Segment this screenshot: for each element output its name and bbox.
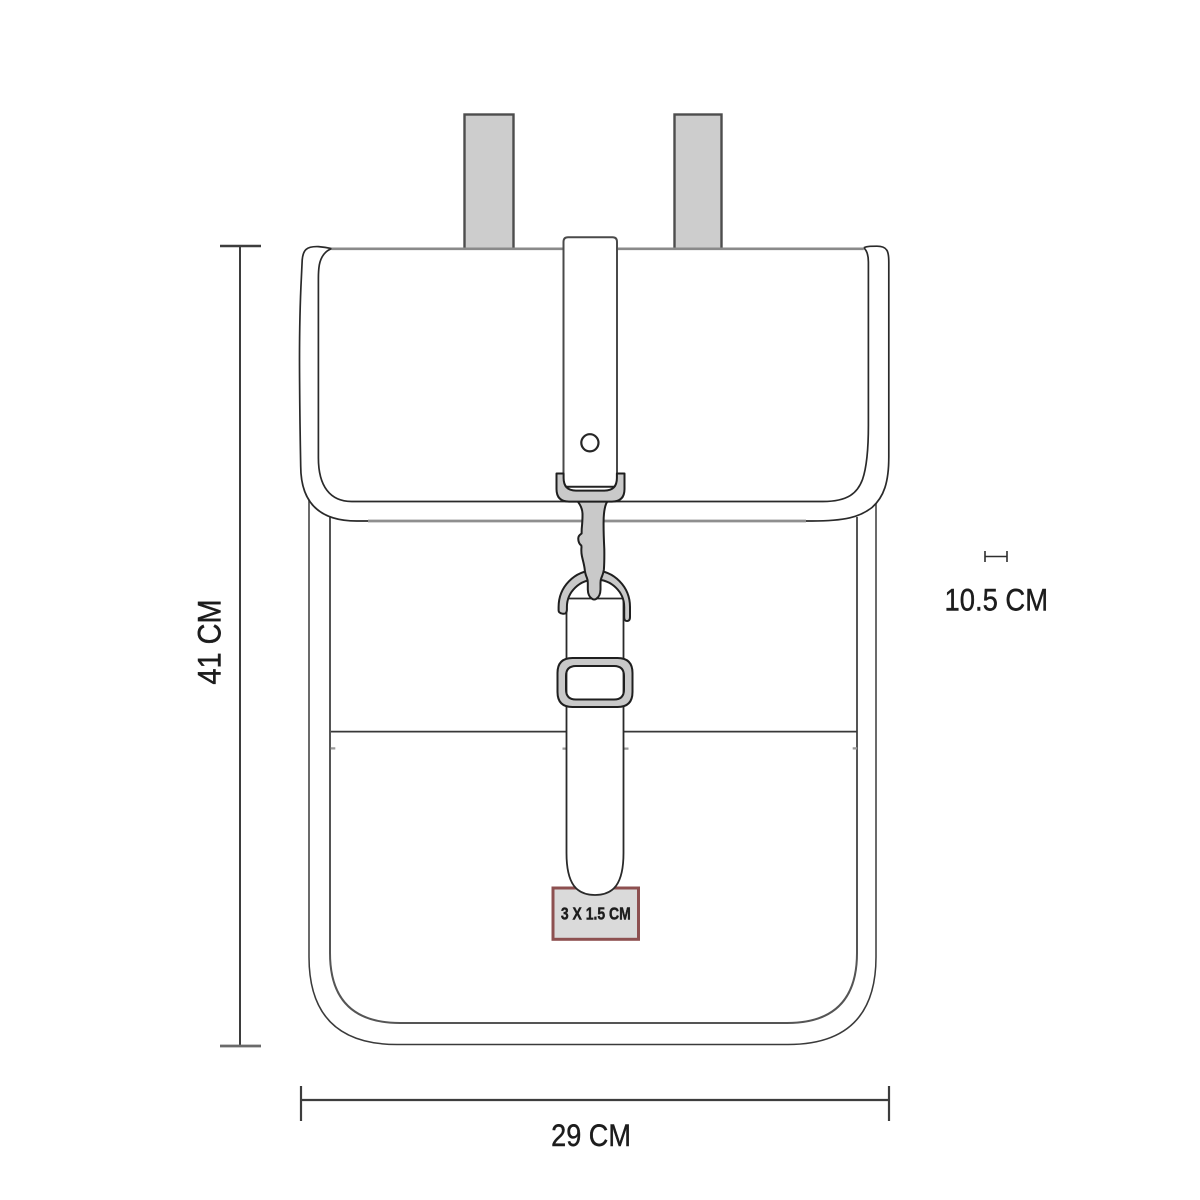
- svg-text:41 CM: 41 CM: [191, 599, 228, 684]
- svg-text:3 X 1.5 CM: 3 X 1.5 CM: [561, 905, 631, 924]
- svg-text:29 CM: 29 CM: [551, 1118, 631, 1153]
- svg-text:10.5 CM: 10.5 CM: [945, 583, 1049, 618]
